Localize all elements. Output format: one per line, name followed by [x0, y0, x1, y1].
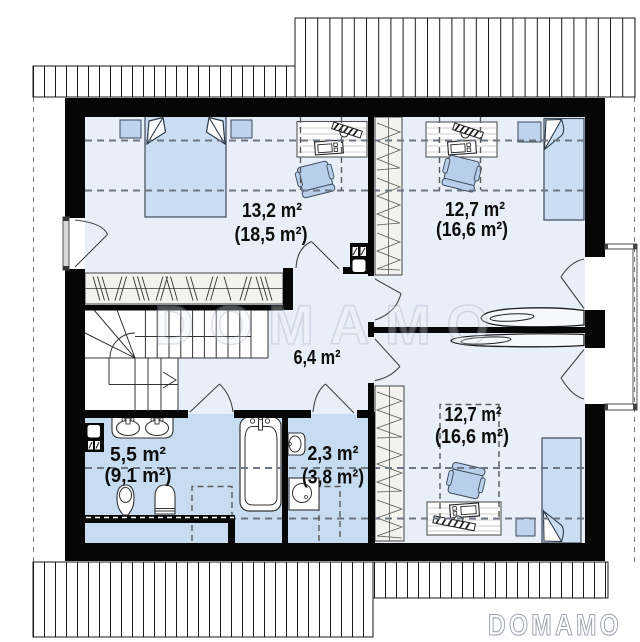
- svg-text:2,3 m²: 2,3 m²: [308, 443, 359, 465]
- svg-text:13,2 m²: 13,2 m²: [242, 200, 302, 222]
- svg-text:(16,6 m²): (16,6 m²): [436, 219, 508, 241]
- svg-text:12,7 m²: 12,7 m²: [445, 404, 502, 426]
- svg-text:(16,6 m²): (16,6 m²): [435, 426, 509, 448]
- svg-text:(3,8 m²): (3,8 m²): [302, 467, 364, 489]
- svg-text:DOMAMO: DOMAMO: [488, 609, 622, 642]
- svg-text:6,4 m²: 6,4 m²: [294, 347, 341, 369]
- svg-text:12,7 m²: 12,7 m²: [445, 199, 505, 221]
- svg-text:(9,1 m²): (9,1 m²): [105, 465, 172, 487]
- svg-text:5,5 m²: 5,5 m²: [110, 444, 166, 466]
- svg-text:(18,5 m²): (18,5 m²): [235, 224, 308, 246]
